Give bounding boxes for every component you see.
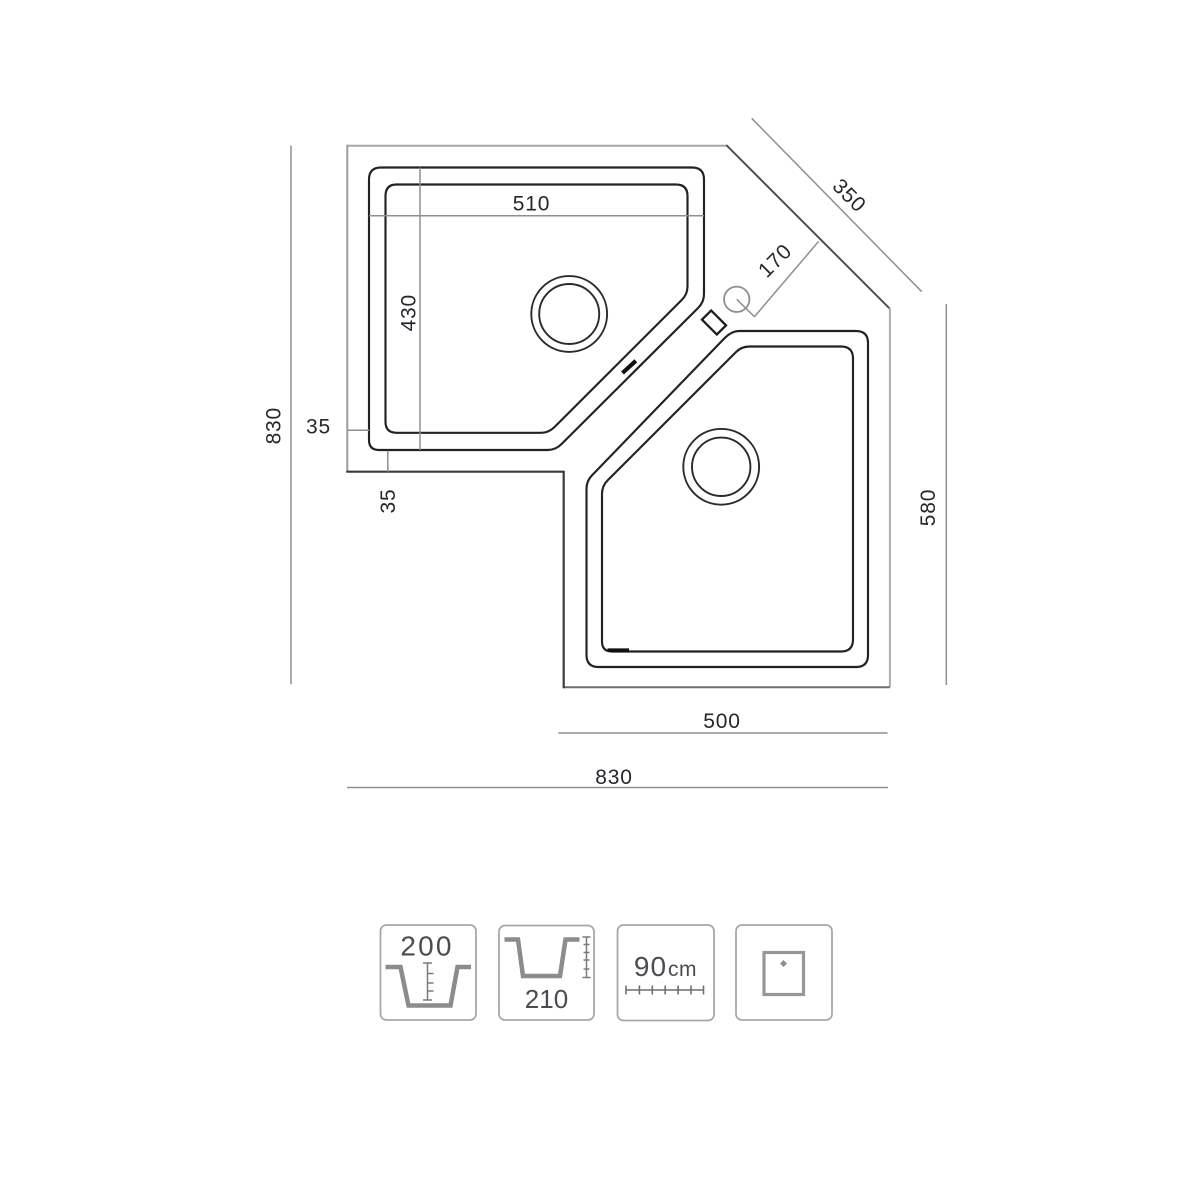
svg-text:830: 830 xyxy=(595,766,632,789)
svg-text:580: 580 xyxy=(917,489,940,526)
svg-text:510: 510 xyxy=(513,193,550,216)
svg-text:35: 35 xyxy=(377,489,400,514)
svg-text:430: 430 xyxy=(398,294,421,331)
svg-text:210: 210 xyxy=(525,984,568,1014)
svg-text:90: 90 xyxy=(634,951,667,982)
svg-text:35: 35 xyxy=(306,416,331,439)
svg-text:500: 500 xyxy=(703,710,740,733)
svg-text:cm: cm xyxy=(668,958,697,981)
svg-text:200: 200 xyxy=(400,931,453,962)
svg-text:830: 830 xyxy=(263,407,286,444)
